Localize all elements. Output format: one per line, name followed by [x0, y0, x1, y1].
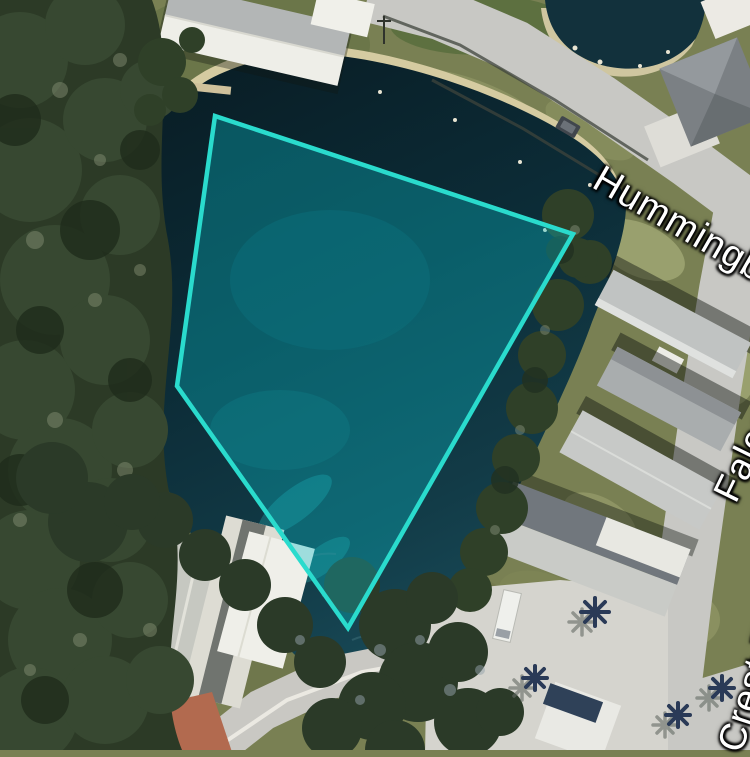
- satellite-map-canvas[interactable]: [0, 0, 750, 750]
